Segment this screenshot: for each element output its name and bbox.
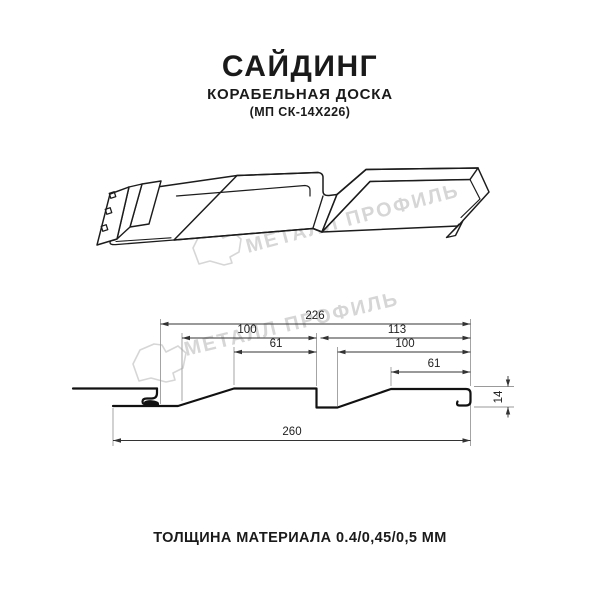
dim-226-label: 226 [305, 310, 324, 322]
dim-100-right-label: 100 [395, 338, 414, 350]
dim-100-left-label: 100 [237, 324, 256, 336]
dim-14: 14 [493, 376, 510, 418]
watermark-brand-text: МЕТАЛЛ ПРОФИЛЬ [182, 288, 401, 361]
watermark-lower: МЕТАЛЛ ПРОФИЛЬ [133, 288, 401, 382]
material-thickness-note: ТОЛЩИНА МАТЕРИАЛА 0.4/0,45/0,5 ММ [0, 530, 600, 546]
dim-260: 260 [113, 426, 471, 443]
dim-100-right: 100 [338, 338, 471, 354]
dim-61-right: 61 [391, 358, 471, 374]
technical-drawing-canvas: МЕТАЛЛ ПРОФИЛЬ МЕТАЛЛ ПРОФИЛЬ [0, 0, 600, 600]
dim-226: 226 [161, 310, 471, 326]
brand-logo-icon [133, 344, 186, 382]
product-drawing-page: САЙДИНГ КОРАБЕЛЬНАЯ ДОСКА (МП СК-14Х226)… [0, 0, 600, 600]
dim-113-label: 113 [388, 324, 406, 336]
dim-260-label: 260 [282, 426, 301, 438]
dim-14-label: 14 [493, 390, 505, 403]
dim-61-right-label: 61 [428, 358, 441, 370]
dim-61-left-label: 61 [270, 338, 283, 350]
